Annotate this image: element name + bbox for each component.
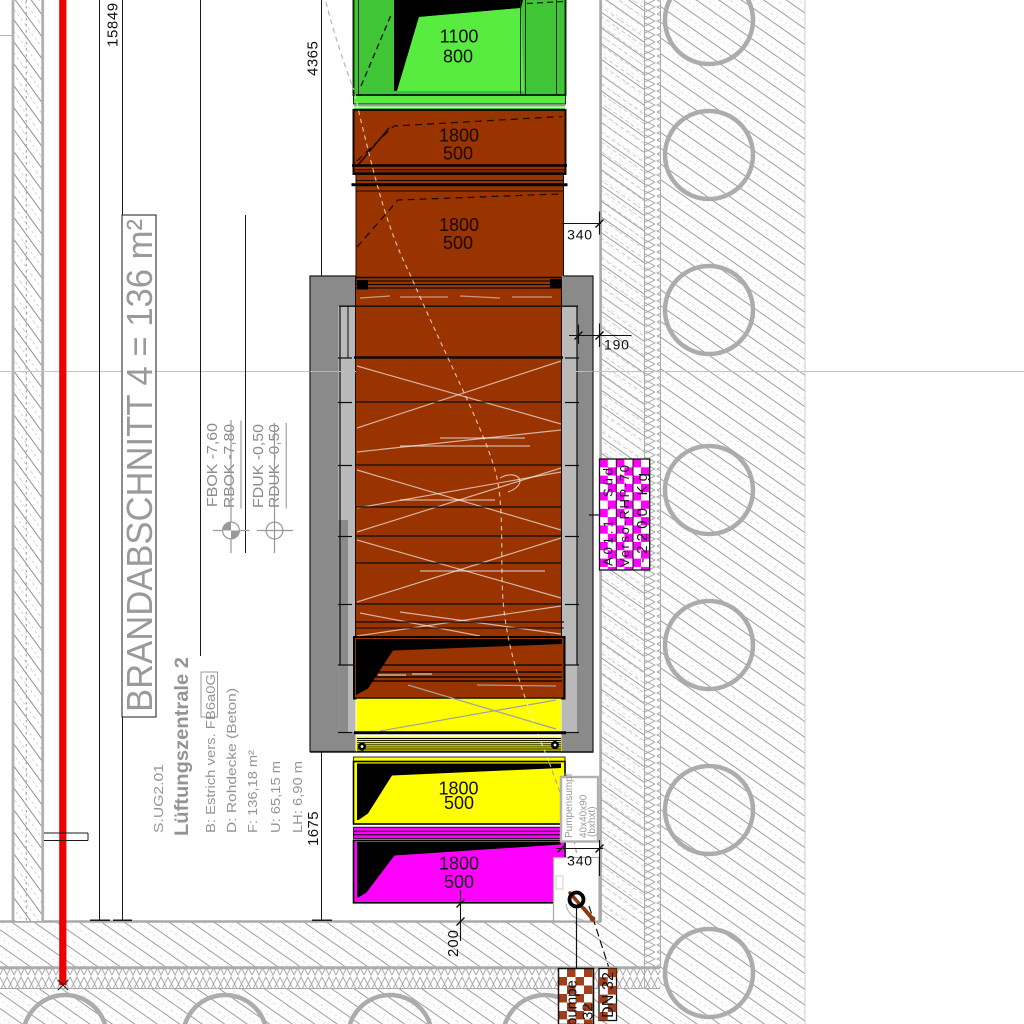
svg-text:pumpe: pumpe: [564, 980, 581, 1024]
svg-text:RBOK -7,80: RBOK -7,80: [221, 424, 238, 508]
svg-text:DN 32: DN 32: [600, 972, 617, 1018]
svg-text:F: 136,18 m²: F: 136,18 m²: [245, 749, 260, 833]
svg-text:15849: 15849: [105, 2, 122, 47]
svg-text:340: 340: [567, 227, 593, 243]
svg-text:D: Rohdecke (Beton): D: Rohdecke (Beton): [224, 688, 239, 833]
svg-text:B: Estrich vers. FB6a0G: B: Estrich vers. FB6a0G: [203, 674, 218, 833]
svg-text:1675: 1675: [305, 811, 322, 846]
svg-text:U: 65,15 m: U: 65,15 m: [268, 761, 283, 833]
svg-text:Verso-RHP-70: Verso-RHP-70: [617, 465, 632, 567]
svg-text:500: 500: [443, 144, 473, 164]
svg-text:500: 500: [444, 793, 474, 813]
svg-text:1800: 1800: [439, 854, 479, 874]
svg-text:Lüftungszentrale 2: Lüftungszentrale 2: [172, 657, 193, 836]
svg-text:S.UG2.01: S.UG2.01: [151, 764, 166, 833]
svg-text:800: 800: [443, 47, 473, 67]
svg-text:500: 500: [444, 872, 474, 892]
svg-text:BRANDABSCHNITT 4 = 136 m²: BRANDABSCHNITT 4 = 136 m²: [119, 219, 160, 712]
svg-text:FDUK -0,50: FDUK -0,50: [250, 424, 267, 508]
svg-text:1800: 1800: [439, 215, 479, 235]
svg-text:4365: 4365: [305, 41, 322, 76]
svg-text:FBOK -7,60: FBOK -7,60: [204, 423, 221, 507]
svg-text:32: 32: [580, 1003, 597, 1020]
svg-text:Pumpensumpf: Pumpensumpf: [564, 773, 575, 838]
svg-text:A01.1 - Süd: A01.1 - Süd: [601, 468, 616, 566]
svg-text:340: 340: [567, 853, 593, 869]
svg-text:190: 190: [604, 337, 630, 353]
svg-text:1100: 1100: [440, 27, 479, 47]
svg-text:1800: 1800: [439, 126, 479, 146]
svg-text:(bxhxt): (bxhxt): [587, 806, 598, 837]
svg-text:LH: 6,90 m: LH: 6,90 m: [290, 761, 305, 833]
svg-text:200: 200: [445, 929, 462, 957]
svg-text:500: 500: [443, 233, 473, 253]
